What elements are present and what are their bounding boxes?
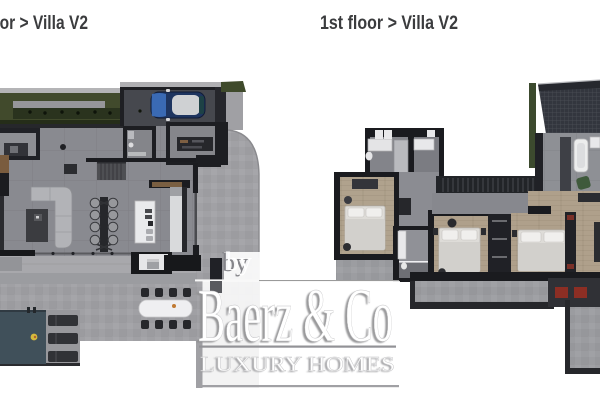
svg-text:Ground floor > Villa V2: Ground floor > Villa V2 bbox=[0, 13, 88, 34]
svg-text:by: by bbox=[226, 247, 252, 276]
svg-text:1st floor > Villa V2: 1st floor > Villa V2 bbox=[320, 13, 458, 34]
svg-text:Baerz & Co: Baerz & Co bbox=[198, 274, 393, 358]
svg-text:LUXURY HOMES: LUXURY HOMES bbox=[200, 352, 395, 376]
